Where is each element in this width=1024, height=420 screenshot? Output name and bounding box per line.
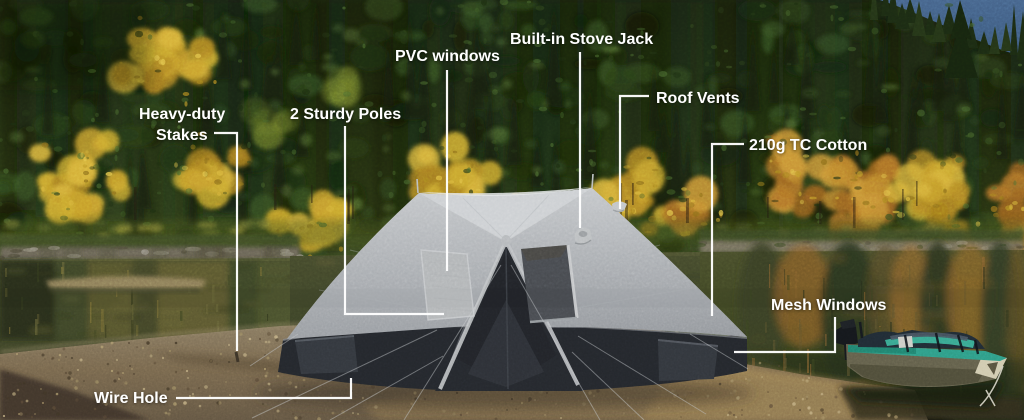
svg-text:Wire Hole: Wire Hole	[94, 390, 168, 407]
svg-text:210g TC Cotton: 210g TC Cotton	[749, 137, 867, 154]
svg-text:Heavy-duty: Heavy-duty	[139, 106, 225, 123]
svg-text:2 Sturdy Poles: 2 Sturdy Poles	[290, 106, 401, 123]
svg-text:PVC windows: PVC windows	[395, 48, 500, 65]
svg-text:Built-in Stove Jack: Built-in Stove Jack	[510, 31, 653, 48]
svg-text:Stakes: Stakes	[156, 127, 208, 144]
svg-text:Roof Vents: Roof Vents	[656, 90, 740, 107]
svg-text:Mesh Windows: Mesh Windows	[771, 297, 887, 314]
